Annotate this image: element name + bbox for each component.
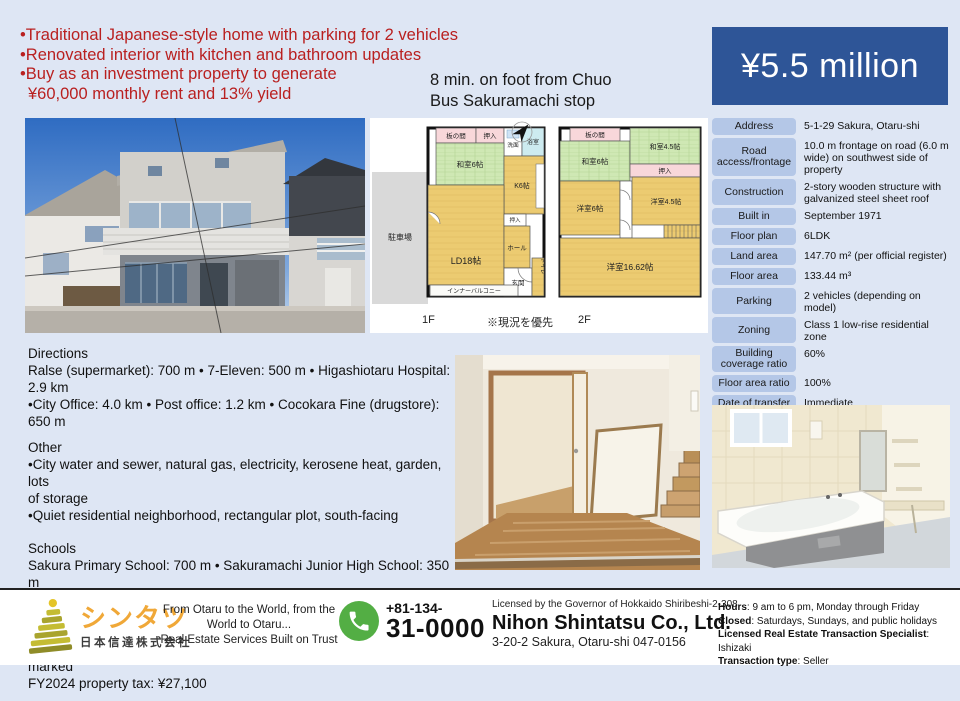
row-value: 2 vehicles (depending on model)	[796, 288, 952, 314]
row-label: Zoning	[712, 317, 796, 343]
table-row: Construction2-story wooden structure wit…	[712, 179, 952, 205]
office-closed: Closed: Saturdays, Sundays, and public h…	[718, 615, 953, 629]
row-label: Parking	[712, 288, 796, 314]
company-block: Licensed by the Governor of Hokkaido Shi…	[492, 599, 738, 650]
exterior-photo	[25, 118, 365, 333]
row-value: 10.0 m frontage on road (6.0 m wide) on …	[796, 138, 952, 176]
hallway-photo	[455, 355, 700, 570]
footer: シンタツ 日本信達株式会社 From Otaru to the World, f…	[0, 588, 960, 665]
row-label: Road access/frontage	[712, 138, 796, 176]
exterior-photo-image	[25, 118, 365, 333]
floorplan-note: ※現況を優先	[462, 314, 578, 330]
floorplan-2f: 板の間 和室6帖 和室4.5帖 押入 洋室6帖 洋室4.5帖 洋室16.62帖	[554, 120, 706, 312]
company-address: 3-20-2 Sakura, Otaru-shi 047-0156	[492, 635, 738, 650]
row-label: Floor area ratio	[712, 375, 796, 392]
room-label-itanoma: 板の間	[446, 131, 466, 140]
company-name: Nihon Shintatsu Co., Ltd.	[492, 611, 738, 635]
room-label-balcony: インナーバルコニー	[447, 288, 501, 295]
section-heading: Other	[28, 439, 460, 456]
office-hours: Hours: 9 am to 6 pm, Monday through Frid…	[718, 601, 953, 615]
section-heading: Schools	[28, 540, 460, 557]
table-row: Parking2 vehicles (depending on model)	[712, 288, 952, 314]
section-heading: Directions	[28, 345, 460, 362]
flyer-page: •Traditional Japanese-style home with pa…	[0, 0, 960, 665]
leaning-panel	[591, 425, 661, 521]
table-row: Built inSeptember 1971	[712, 208, 952, 225]
company-license: Licensed by the Governor of Hokkaido Shi…	[492, 599, 738, 611]
selling-point: •Buy as an investment property to genera…	[20, 65, 465, 85]
office-info: Hours: 9 am to 6 pm, Monday through Frid…	[718, 601, 953, 669]
room-label-oshiire-2f: 押入	[659, 166, 673, 175]
floor1-label: 1F	[422, 314, 435, 326]
row-label: Address	[712, 118, 796, 135]
price-amount: ¥5.5 million	[741, 47, 919, 86]
room-label-hall: ホール	[507, 244, 527, 252]
table-row: Address5-1-29 Sakura, Otaru-shi	[712, 118, 952, 135]
row-value: 133.44 m³	[796, 268, 851, 285]
price-banner: ¥5.5 million	[712, 27, 948, 105]
room-label-toilet: トイレ	[539, 258, 545, 275]
bus-access-note: 8 min. on foot from Chuo Bus Sakuramachi…	[430, 70, 612, 112]
row-label: Floor area	[712, 268, 796, 285]
room-label-yoshitsu16-2f: 洋室16.62帖	[607, 262, 654, 272]
floorplan-panel: 駐車場 板の間 押入 洗面 浴室 和室6帖 K6帖 LD18帖 押入 ホール 玄…	[370, 118, 708, 333]
tagline-line: From Otaru to the World, from the	[158, 603, 340, 618]
section-line: •City Office: 4.0 km • Post office: 1.2 …	[28, 396, 460, 430]
row-label: Built in	[712, 208, 796, 225]
row-label: Floor plan	[712, 228, 796, 245]
room-label-itanoma-2f: 板の間	[585, 130, 605, 139]
floor2-label: 2F	[578, 314, 591, 326]
stairs	[664, 225, 700, 238]
row-value: 2-story wooden structure with galvanized…	[796, 179, 952, 205]
room-label-washitsu: 和室6帖	[457, 159, 484, 169]
room-label-yoshitsu45-2f: 洋室4.5帖	[651, 197, 682, 206]
row-label: Building coverage ratio	[712, 346, 796, 372]
tagline-line: Real Estate Services Built on Trust	[158, 633, 340, 648]
table-row: ZoningClass 1 low-rise residential zone	[712, 317, 952, 343]
room-living	[428, 185, 504, 285]
section-directions: Directions Ralse (supermarket): 700 m • …	[28, 345, 460, 430]
row-value: 100%	[796, 375, 831, 392]
tagline-line: World to Otaru...	[158, 618, 340, 633]
phone-numbers: +81-134- 31-0000	[386, 601, 485, 641]
bus-access-line: 8 min. on foot from Chuo	[430, 70, 612, 91]
row-value: 6LDK	[796, 228, 830, 245]
selling-point: ¥60,000 monthly rent and 13% yield	[20, 85, 465, 105]
room-label-oshiire: 押入	[484, 131, 498, 140]
bus-access-line: Bus Sakuramachi stop	[430, 91, 612, 112]
hallway-photo-image	[455, 355, 700, 570]
room-label-washitsu45-2f: 和室4.5帖	[650, 142, 681, 151]
room-label-washitsu6-2f: 和室6帖	[582, 156, 609, 166]
office-specialist: Licensed Real Estate Transaction Special…	[718, 628, 953, 655]
row-value: 60%	[796, 346, 825, 372]
room-label-yoshitsu6-2f: 洋室6帖	[577, 203, 604, 213]
table-row: Floor plan6LDK	[712, 228, 952, 245]
row-value: Class 1 low-rise residential zone	[796, 317, 952, 343]
table-row: Land area147.70 m² (per official registe…	[712, 248, 952, 265]
room-label-parking: 駐車場	[388, 232, 412, 242]
phone-number: 31-0000	[386, 615, 485, 641]
property-details-table: Address5-1-29 Sakura, Otaru-shi Road acc…	[712, 118, 952, 435]
row-value: September 1971	[796, 208, 882, 225]
office-transaction-type: Transaction type: Seller	[718, 655, 953, 669]
row-value: 5-1-29 Sakura, Otaru-shi	[796, 118, 920, 135]
selling-points: •Traditional Japanese-style home with pa…	[20, 26, 465, 104]
table-row: Floor area ratio100%	[712, 375, 952, 392]
compass-icon	[510, 120, 534, 144]
section-line: •City water and sewer, natural gas, elec…	[28, 456, 460, 490]
table-row: Building coverage ratio60%	[712, 346, 952, 372]
bathroom-photo-image	[712, 405, 950, 568]
bathroom-mirror	[860, 431, 886, 491]
row-value: 147.70 m² (per official register)	[796, 248, 947, 265]
bathroom-photo	[712, 405, 950, 568]
room-label-kitchen: K6帖	[514, 181, 530, 190]
section-line: of storage	[28, 490, 460, 507]
section-line: Ralse (supermarket): 700 m • 7-Eleven: 5…	[28, 362, 460, 396]
tree-logo-icon	[28, 596, 74, 658]
company-tagline: From Otaru to the World, from the World …	[158, 603, 340, 648]
row-label: Construction	[712, 179, 796, 205]
room-label-living: LD18帖	[451, 255, 482, 266]
row-label: Land area	[712, 248, 796, 265]
selling-point: •Renovated interior with kitchen and bat…	[20, 46, 465, 66]
section-line: Sakura Primary School: 700 m • Sakuramac…	[28, 557, 460, 591]
section-line: •Quiet residential neighborhood, rectang…	[28, 507, 460, 524]
section-schools: Schools Sakura Primary School: 700 m • S…	[28, 540, 460, 591]
section-other: Other •City water and sewer, natural gas…	[28, 439, 460, 524]
phone-block: +81-134- 31-0000	[338, 600, 485, 642]
table-row: Floor area133.44 m³	[712, 268, 952, 285]
selling-point: •Traditional Japanese-style home with pa…	[20, 26, 465, 46]
room-label-oshiire2: 押入	[509, 216, 521, 224]
section-line: FY2024 property tax: ¥27,100	[28, 675, 460, 692]
open-door	[573, 373, 587, 523]
floorplan-1f: 駐車場 板の間 押入 洗面 浴室 和室6帖 K6帖 LD18帖 押入 ホール 玄…	[370, 120, 550, 312]
phone-icon	[338, 600, 380, 642]
table-row: Road access/frontage10.0 m frontage on r…	[712, 138, 952, 176]
